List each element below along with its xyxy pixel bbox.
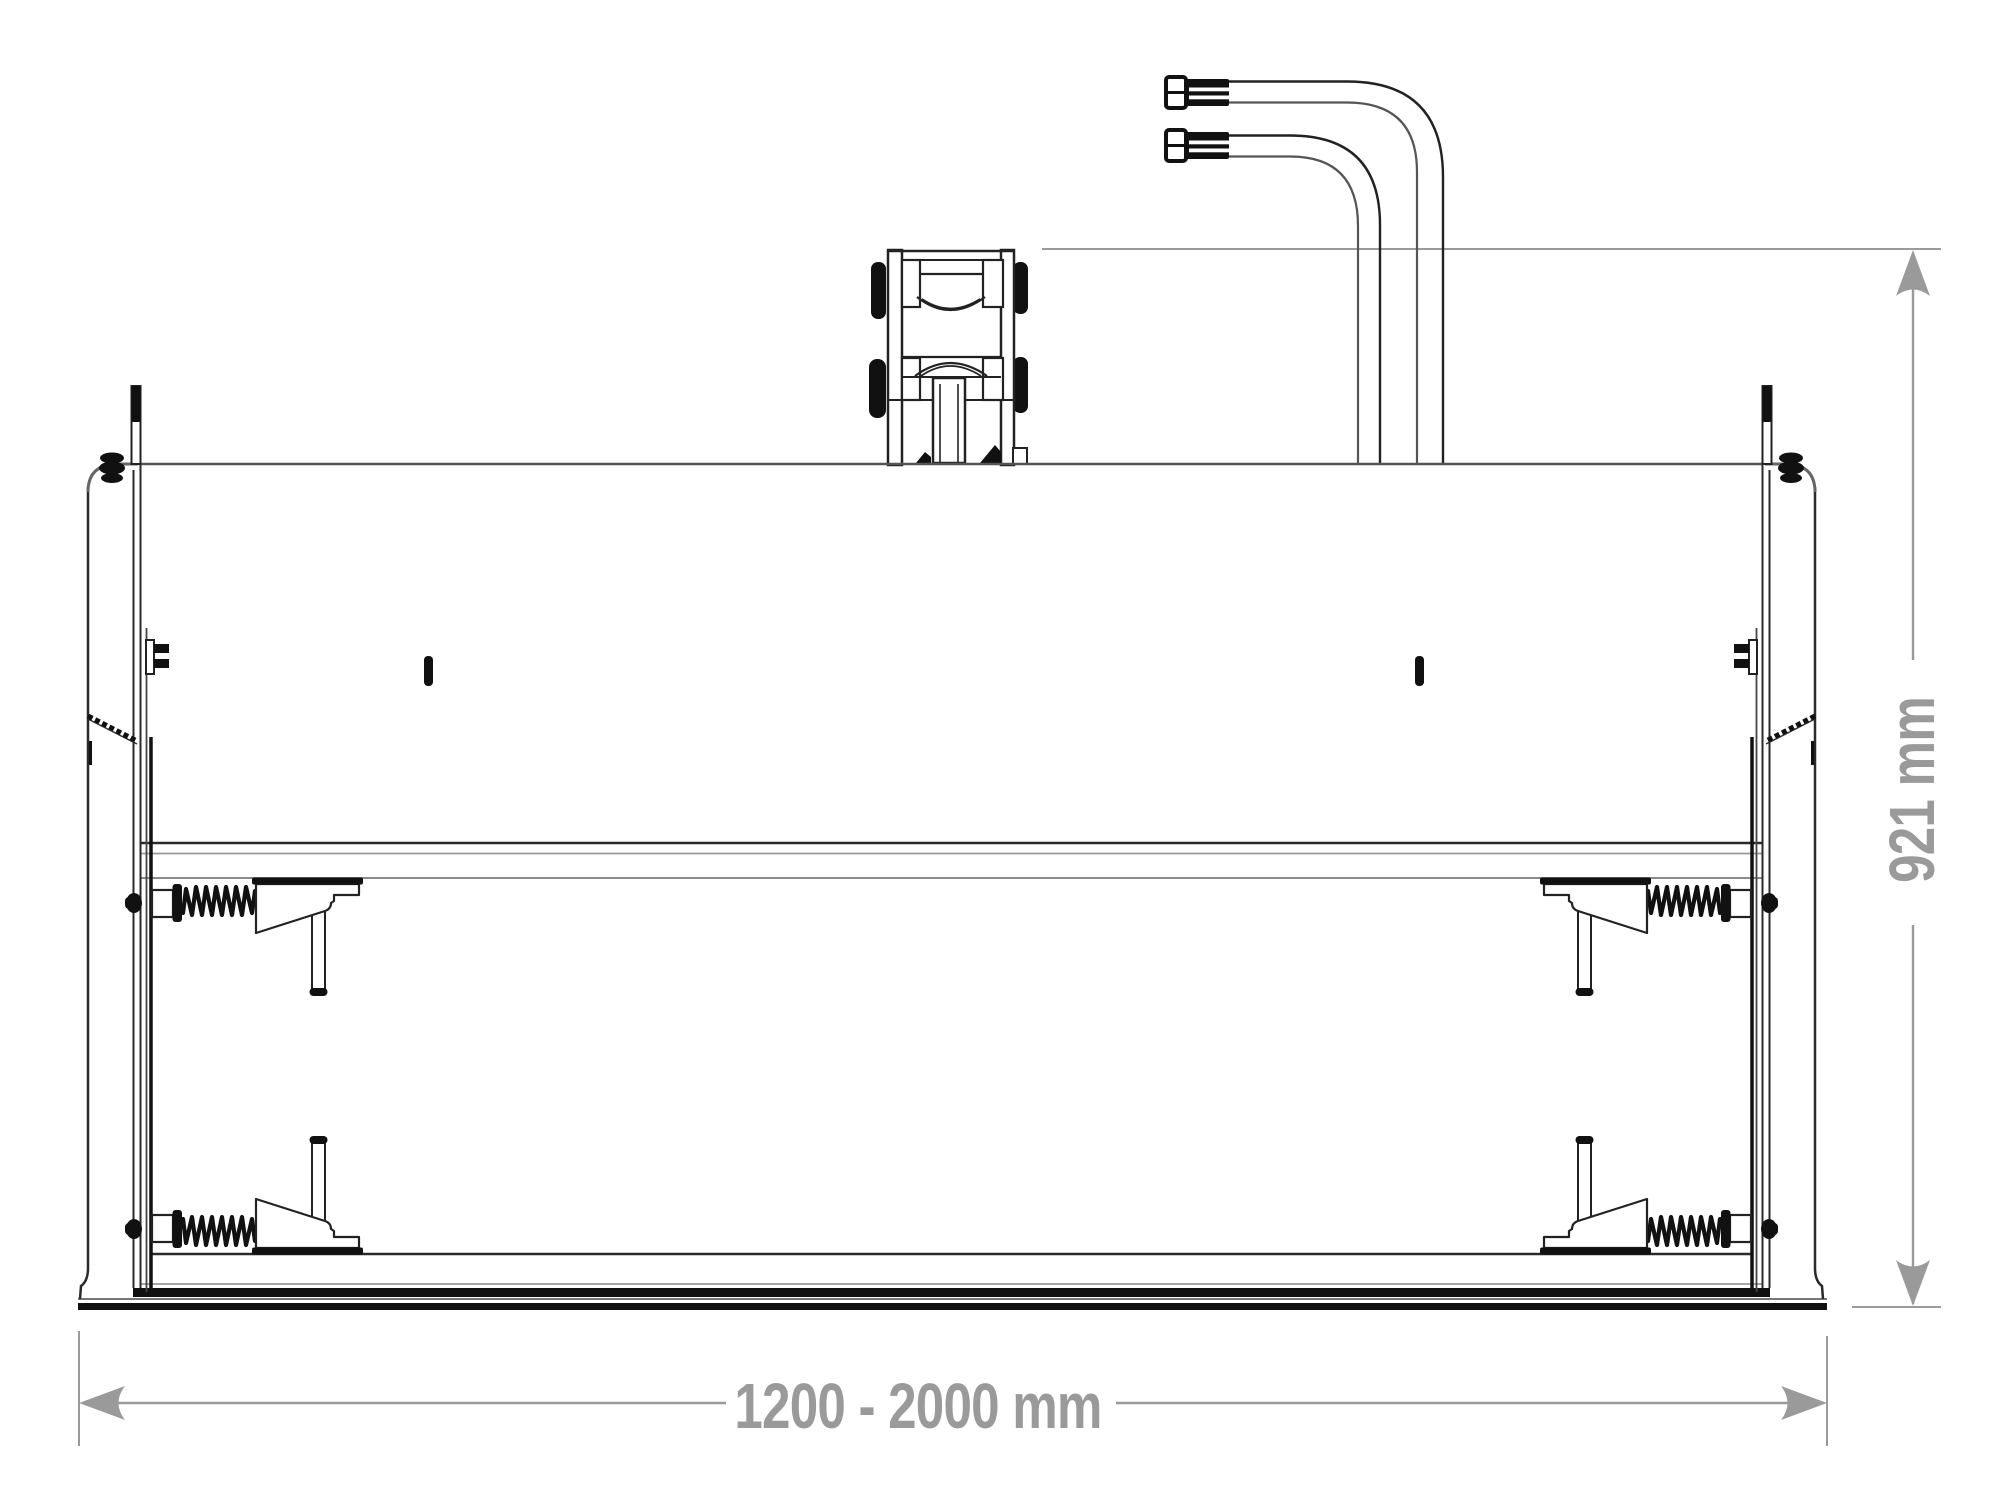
height-dimension: 921 mm [1878, 250, 1949, 1306]
technical-drawing-page: 921 mm 1200 - 2000 mm [0, 0, 2016, 1512]
hose-coupling-lower-icon [1166, 130, 1229, 161]
latch-bottom-left [125, 1136, 363, 1255]
arrow-up-icon [1896, 250, 1930, 296]
latch-top-right [1540, 878, 1778, 997]
bracket-stem [933, 378, 965, 463]
latch-bottom-right [1540, 1136, 1778, 1255]
base-plate [78, 1284, 1827, 1310]
attachment-technical-drawing: 921 mm 1200 - 2000 mm [0, 0, 2016, 1512]
arrow-left-icon [79, 1386, 125, 1420]
hydraulic-hoses [1166, 77, 1443, 463]
wall-slot-left [424, 656, 433, 686]
hose-2-inner [1229, 157, 1358, 464]
width-dimension: 1200 - 2000 mm [79, 1372, 1827, 1443]
main-body [78, 386, 1827, 1310]
quick-attach-bracket [869, 250, 1028, 465]
arrow-right-icon [1781, 1386, 1827, 1420]
hose-coupling-upper-icon [1166, 77, 1229, 108]
bracket-plate-left [888, 250, 902, 465]
wall-slot-right [1415, 656, 1424, 686]
height-dimension-label: 921 mm [1878, 697, 1949, 883]
arrow-down-icon [1896, 1260, 1930, 1306]
cross-rail [141, 843, 1762, 878]
width-dimension-label: 1200 - 2000 mm [734, 1372, 1101, 1443]
latch-top-left [125, 878, 363, 997]
